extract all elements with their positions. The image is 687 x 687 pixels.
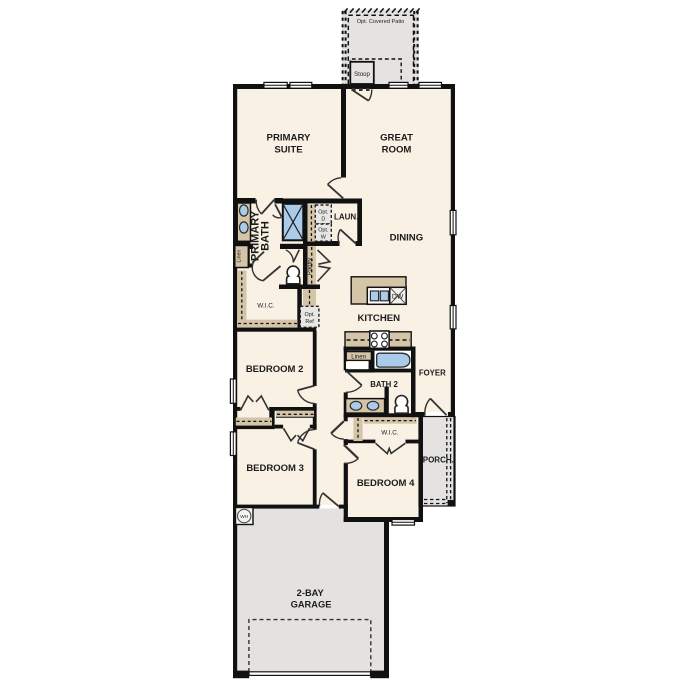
svg-text:BEDROOM 2: BEDROOM 2 [246, 364, 304, 375]
svg-text:Ref: Ref [305, 319, 314, 325]
svg-text:GREAT: GREAT [380, 133, 413, 144]
svg-text:Opt.: Opt. [318, 228, 328, 234]
svg-text:PRIMARY: PRIMARY [267, 133, 311, 144]
svg-text:KITCHEN: KITCHEN [357, 313, 400, 324]
svg-text:2-BAY: 2-BAY [297, 588, 325, 598]
svg-text:BATH: BATH [260, 221, 272, 251]
svg-text:W.I.C.: W.I.C. [257, 303, 275, 310]
svg-text:DINING: DINING [390, 233, 424, 244]
svg-text:D: D [321, 217, 325, 223]
svg-text:W.I.C.: W.I.C. [381, 430, 399, 437]
svg-text:Linen: Linen [351, 354, 366, 360]
svg-text:Opt. Covered Patio: Opt. Covered Patio [357, 19, 405, 25]
svg-text:BATH 2: BATH 2 [370, 380, 398, 389]
svg-text:W: W [321, 235, 327, 241]
svg-text:Opt.: Opt. [318, 210, 328, 216]
svg-text:LAUN.: LAUN. [334, 212, 358, 221]
svg-text:Opt.: Opt. [305, 312, 315, 318]
svg-text:GARAGE: GARAGE [291, 600, 332, 610]
svg-text:DW: DW [392, 294, 404, 301]
svg-text:WH: WH [240, 514, 249, 520]
svg-text:FOYER: FOYER [419, 369, 446, 378]
svg-text:Pantry: Pantry [308, 258, 314, 275]
svg-text:BEDROOM 3: BEDROOM 3 [246, 463, 304, 474]
svg-text:PORCH.: PORCH. [423, 456, 454, 465]
svg-text:BEDROOM 4: BEDROOM 4 [357, 478, 415, 489]
svg-text:Stoop: Stoop [354, 72, 370, 78]
svg-text:Linen: Linen [237, 250, 243, 263]
svg-text:SUITE: SUITE [274, 145, 303, 156]
svg-text:ROOM: ROOM [382, 145, 412, 156]
